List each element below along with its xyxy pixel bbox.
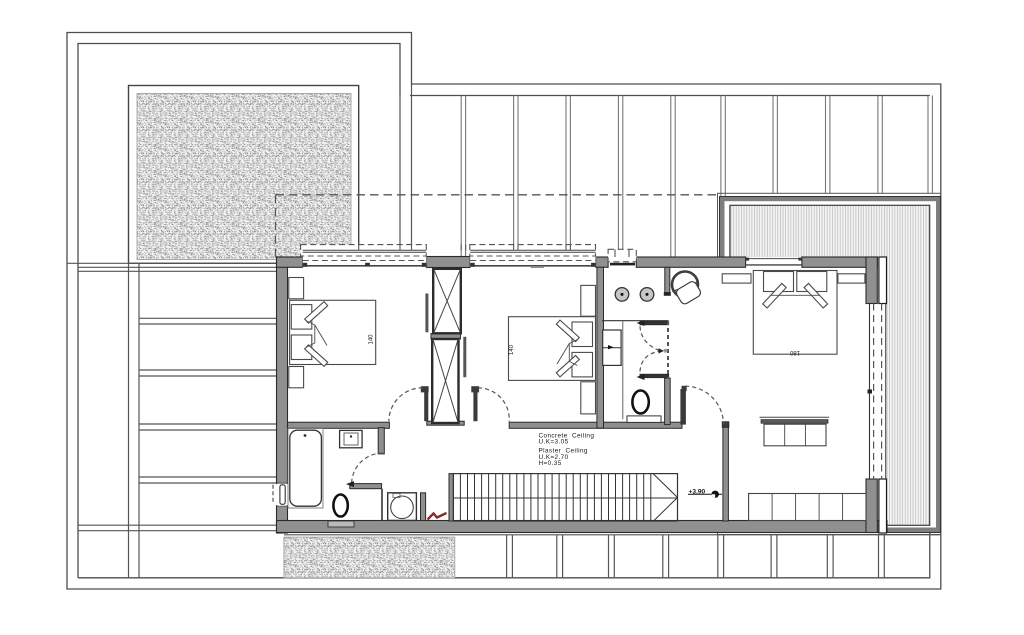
svg-text:H=0.35: H=0.35: [539, 460, 562, 467]
svg-text:140: 140: [369, 334, 375, 345]
svg-text:U.K=3.05: U.K=3.05: [539, 439, 569, 446]
svg-text:180: 180: [789, 349, 800, 355]
svg-text:140: 140: [509, 344, 515, 355]
